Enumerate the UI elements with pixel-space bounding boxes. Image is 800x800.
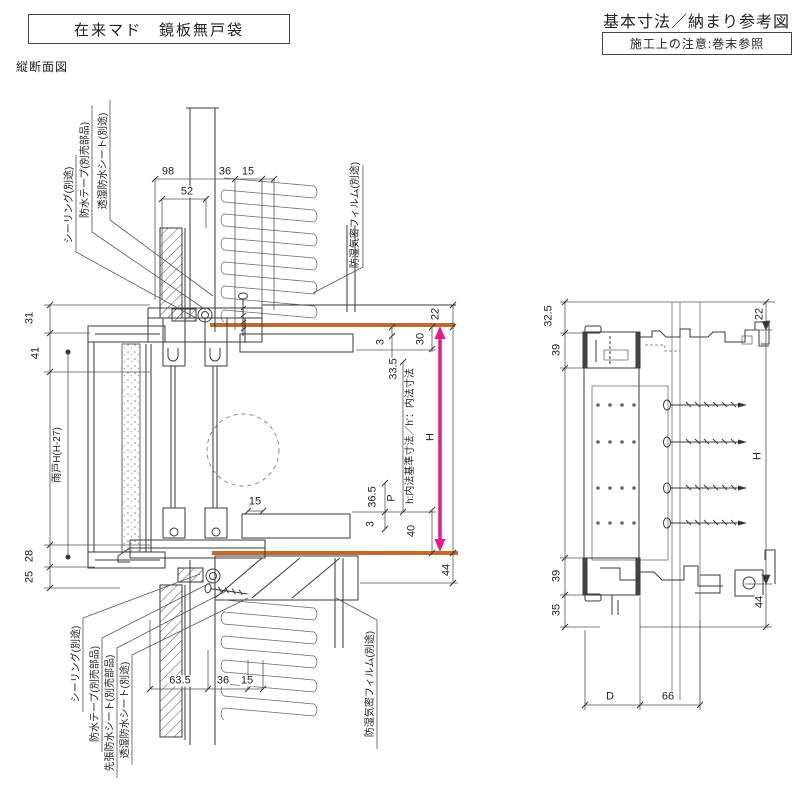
callout-sheet-bottom: 透湿防水シート(別途) <box>121 661 131 760</box>
side-dim-35: 35 <box>552 603 563 617</box>
dim-left-31: 31 <box>25 311 36 325</box>
dim-top-36: 36 <box>218 167 232 178</box>
dim-top-15: 15 <box>241 167 255 178</box>
fixing-screw <box>664 437 748 447</box>
dim-right-H: H <box>426 432 437 442</box>
note-text: 施工上の注意:巻末参照 <box>630 35 764 52</box>
dim-right-3-bottom: 3 <box>366 520 377 528</box>
callout-pre-sheet-bottom: 先張防水シート(別売部品) <box>106 654 116 773</box>
doc-title: 基本寸法／納まり参考図 <box>603 8 790 32</box>
product-title: 在来マド 鏡板無戸袋 <box>74 19 244 40</box>
insulation-top <box>221 178 317 322</box>
side-dim-44: 44 <box>755 595 766 609</box>
side-dim-66: 66 <box>661 692 675 703</box>
callout-sealing-bottom: シーリング(別途) <box>72 625 82 704</box>
callout-film-bottom: 防湿気密フィルム(別途) <box>366 630 376 738</box>
dim-right-30: 30 <box>416 332 427 346</box>
callout-film-top: 防湿気密フィルム(別途) <box>351 161 361 269</box>
dim-left-28: 28 <box>25 549 36 563</box>
dim-left-25: 25 <box>25 570 36 584</box>
dim-right-33-5: 33.5 <box>389 357 400 380</box>
sliding-sashes <box>163 342 279 538</box>
dim-right-3-top: 3 <box>376 338 387 346</box>
callout-sealing-top: シーリング(別途) <box>65 166 75 245</box>
dim-bottom-15: 15 <box>240 676 254 687</box>
callout-sheet-top: 透湿防水シート(別途) <box>99 112 109 211</box>
head-board <box>240 334 353 352</box>
dim-left-41: 41 <box>31 346 42 360</box>
panel-fixing-holes <box>596 403 636 525</box>
side-dim-H: H <box>753 451 764 461</box>
side-dim-22: 22 <box>755 307 766 321</box>
dim-mid-15: 15 <box>248 497 262 508</box>
product-title-box: 在来マド 鏡板無戸袋 <box>28 14 290 44</box>
fixing-screw <box>664 400 748 410</box>
sill-board <box>242 514 350 538</box>
fixing-screw <box>664 483 748 493</box>
side-section-structure <box>583 302 775 700</box>
side-dim-32-5: 32.5 <box>544 304 555 327</box>
side-dim-D: D <box>605 692 615 703</box>
dim-top-52: 52 <box>180 187 194 198</box>
dim-top-98: 98 <box>161 167 175 178</box>
dim-bottom-36: 36 <box>216 676 230 687</box>
wall-bottom <box>160 558 343 745</box>
dim-right-44: 44 <box>442 563 453 577</box>
dim-inner-note: h:内法基準寸法／h'：内法寸法 <box>406 367 416 505</box>
side-dim-39-top: 39 <box>552 343 563 357</box>
dim-right-22: 22 <box>431 307 442 321</box>
callout-tape-bottom: 防水テープ(別売部品) <box>91 645 101 743</box>
section-label: 縦断面図 <box>16 58 68 75</box>
dim-right-P: P <box>387 493 398 502</box>
note-box: 施工上の注意:巻末参照 <box>602 32 792 55</box>
dimension-ticks-side <box>562 299 769 708</box>
dim-right-36-5: 36.5 <box>368 485 379 508</box>
dim-right-40: 40 <box>407 524 418 538</box>
dim-bottom-63-5: 63.5 <box>168 676 191 687</box>
insulation-bottom <box>221 600 317 720</box>
drawing-sheet: 在来マド 鏡板無戸袋 基本寸法／納まり参考図 施工上の注意:巻末参照 縦断面図 … <box>0 0 800 800</box>
shutter-case <box>88 326 165 568</box>
fixing-screw <box>664 518 748 528</box>
callout-tape-top: 防水テープ(別売部品) <box>81 121 91 219</box>
dim-shutter-height: 雨戸H(H-27) <box>53 426 63 484</box>
side-dim-39-bottom: 39 <box>552 569 563 583</box>
